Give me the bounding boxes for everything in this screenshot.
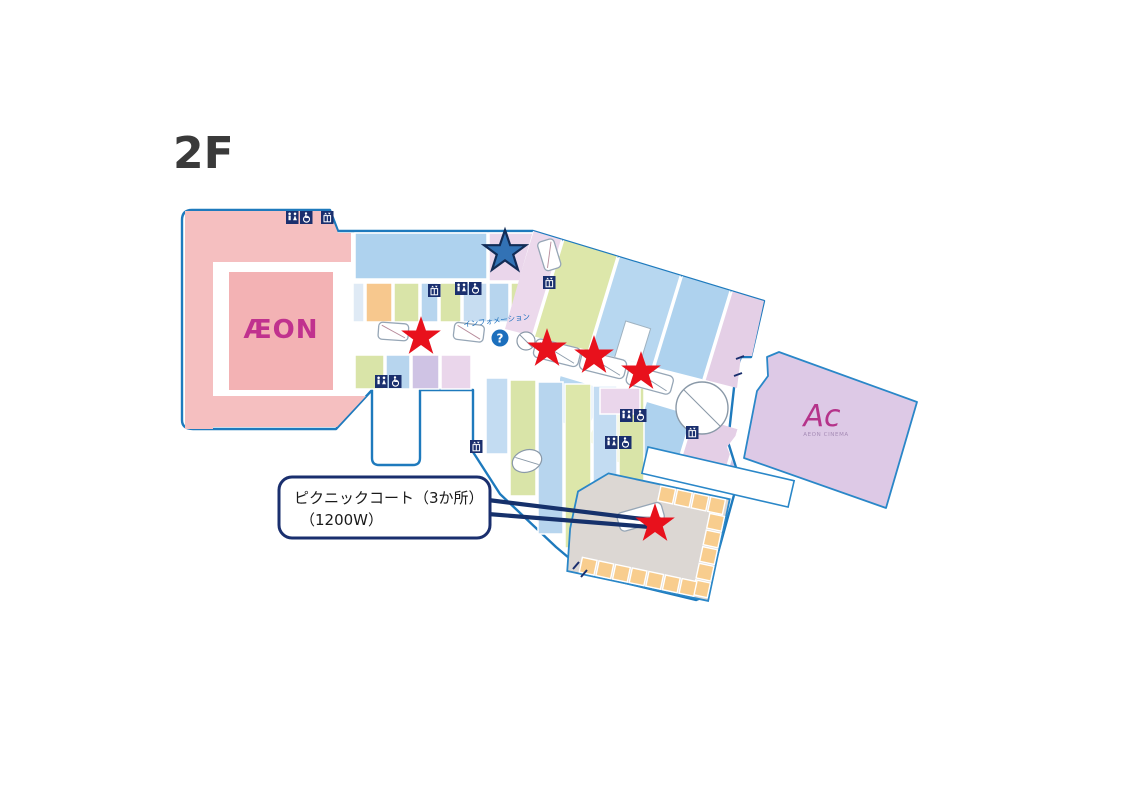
elevator-icon	[543, 276, 556, 289]
aeon-logo: ÆON	[243, 315, 318, 345]
callout-line2: （1200W）	[300, 511, 383, 529]
elevator-icon	[321, 211, 334, 224]
callout-line1: ピクニックコート（3か所）	[294, 489, 484, 507]
elevator-circle-small	[517, 332, 535, 350]
cinema-name-label: AEON CINEMA	[803, 432, 849, 438]
floor-plan-page: 2F ÆON	[0, 0, 1123, 794]
floor-map: 2F ÆON	[0, 0, 1123, 794]
elevator-circle-large	[676, 382, 728, 434]
elevator-icon	[686, 426, 699, 439]
picnic-cart-callout: ピクニックコート（3か所） （1200W）	[279, 477, 490, 538]
elevator-icon	[428, 284, 441, 297]
elevator-icon	[470, 440, 483, 453]
cinema-logo: Ac	[801, 399, 841, 434]
information-icon-symbol: ?	[497, 332, 504, 346]
floor-title: 2F	[173, 128, 234, 179]
